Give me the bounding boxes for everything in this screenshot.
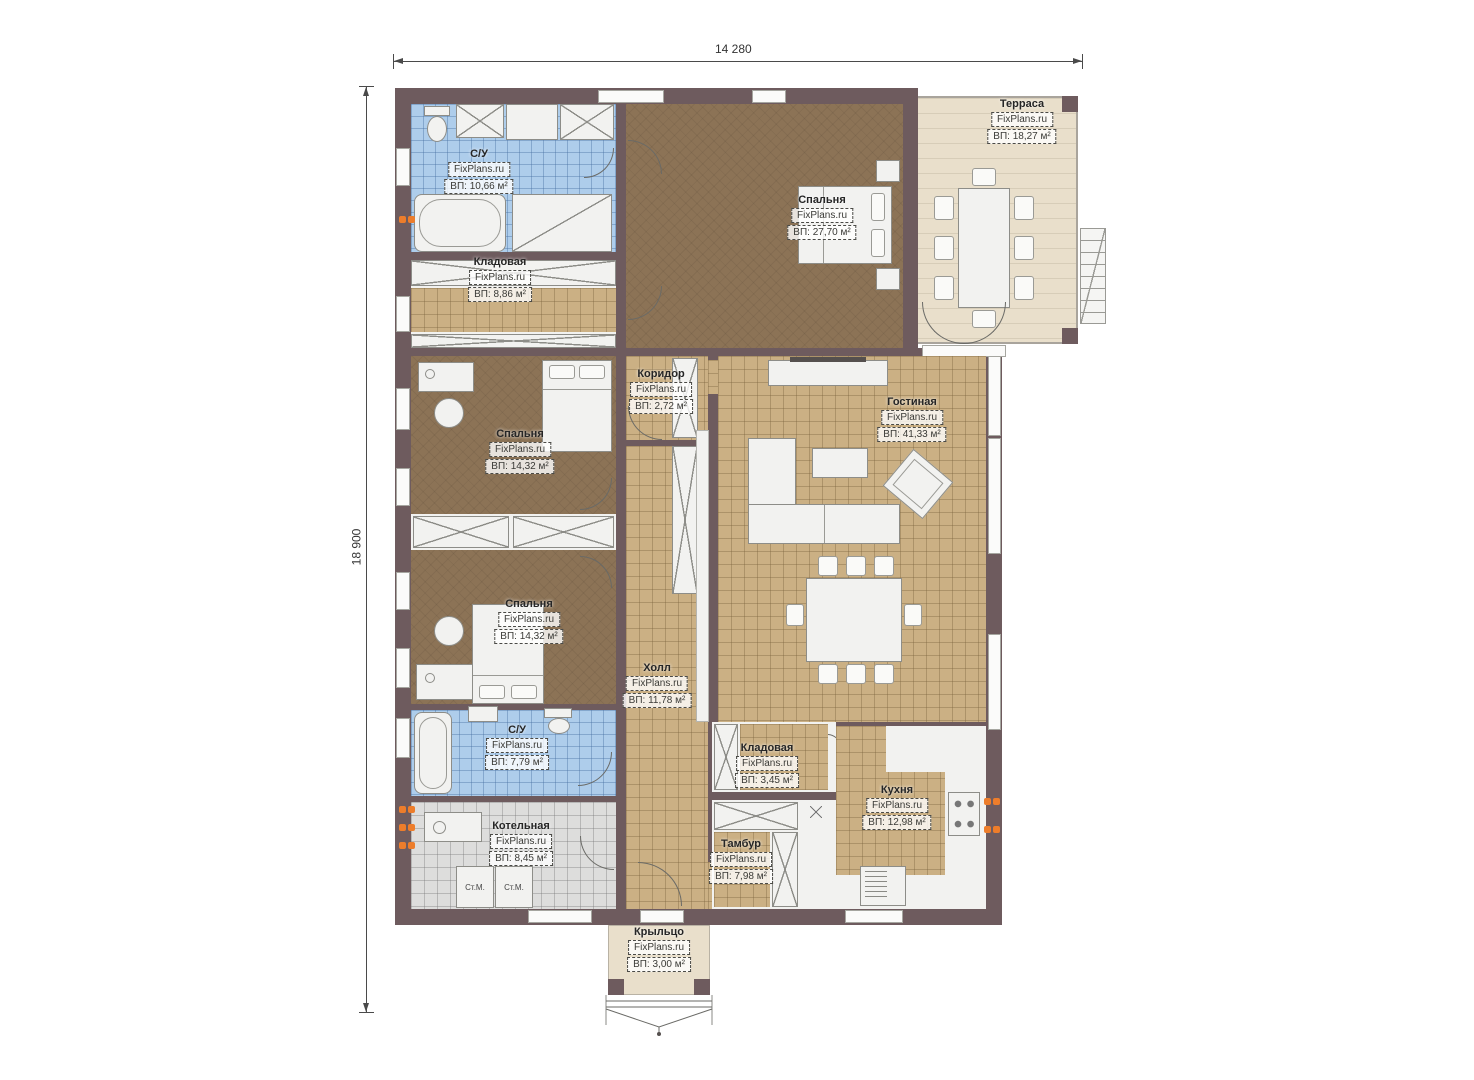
watermark: FixPlans.ru xyxy=(736,756,798,771)
watermark: FixPlans.ru xyxy=(991,112,1053,127)
chair-icon xyxy=(1014,276,1034,300)
room-label-bathroom-top: С/У FixPlans.ru ВП: 10,66 м² xyxy=(444,148,513,194)
wardrobe-icon xyxy=(411,334,616,348)
watermark: FixPlans.ru xyxy=(489,442,551,457)
chair-icon xyxy=(786,604,804,626)
wardrobe-icon xyxy=(672,446,698,594)
window xyxy=(396,296,410,332)
room-area: ВП: 14,32 м² xyxy=(494,629,563,644)
room-area: ВП: 18,27 м² xyxy=(987,129,1056,144)
chair-icon xyxy=(846,664,866,684)
tv-icon xyxy=(790,357,866,362)
dim-arrow-down xyxy=(363,1003,369,1012)
room-area: ВП: 14,32 м² xyxy=(485,459,554,474)
desk-lamp xyxy=(425,369,435,379)
utility-sink-icon xyxy=(424,812,482,842)
porch-post xyxy=(694,979,710,995)
watermark: FixPlans.ru xyxy=(469,270,531,285)
bathtub-icon xyxy=(414,712,452,794)
nightstand-icon xyxy=(876,160,900,182)
room-name: Спальня xyxy=(787,194,856,206)
porch-post xyxy=(608,979,624,995)
coffee-table-icon xyxy=(812,448,868,478)
window xyxy=(396,388,410,430)
window xyxy=(988,356,1001,436)
room-name: Кладовая xyxy=(468,256,532,268)
window xyxy=(752,90,786,103)
room-name: Кладовая xyxy=(735,742,799,754)
room-name: Котельная xyxy=(489,820,553,832)
floor-plan-canvas: 14 280 18 900 xyxy=(0,0,1474,1080)
room-area: ВП: 41,33 м² xyxy=(877,427,946,442)
watermark: FixPlans.ru xyxy=(710,852,772,867)
watermark: FixPlans.ru xyxy=(498,612,560,627)
watermark: FixPlans.ru xyxy=(881,410,943,425)
office-chair-icon xyxy=(434,616,464,646)
watermark: FixPlans.ru xyxy=(486,738,548,753)
bathtub-inner xyxy=(419,199,501,247)
room-name: Гостиная xyxy=(877,396,946,408)
dim-tick xyxy=(1082,54,1083,69)
chair-icon xyxy=(1014,236,1034,260)
dim-arrow-up xyxy=(363,87,369,96)
room-label-bedroom-low: Спальня FixPlans.ru ВП: 14,32 м² xyxy=(494,598,563,644)
desk-icon xyxy=(418,362,474,392)
office-chair-icon xyxy=(434,398,464,428)
radiator-icon xyxy=(399,216,406,223)
dimension-height-line xyxy=(366,86,367,1012)
room-area: ВП: 8,45 м² xyxy=(489,851,553,866)
room-area: ВП: 10,66 м² xyxy=(444,179,513,194)
chair-icon xyxy=(972,168,996,186)
wardrobe-icon xyxy=(714,802,798,830)
washing-machine-icon: Ст.М. xyxy=(495,866,533,908)
chair-icon xyxy=(874,556,894,576)
window xyxy=(988,438,1001,554)
porch-steps-icon xyxy=(602,995,716,1037)
radiator-icon xyxy=(984,798,991,805)
room-name: С/У xyxy=(444,148,513,160)
wardrobe-icon xyxy=(772,832,798,907)
watermark: FixPlans.ru xyxy=(628,940,690,955)
radiator-icon xyxy=(984,826,991,833)
chair-icon xyxy=(1014,196,1034,220)
room-name: Крыльцо xyxy=(627,926,691,938)
washer-label: Ст.М. xyxy=(457,867,493,907)
pillow xyxy=(549,365,575,379)
stairs-icon xyxy=(1080,228,1106,324)
room-name: Спальня xyxy=(494,598,563,610)
terrace-post xyxy=(902,96,918,112)
chair-icon xyxy=(818,556,838,576)
toilet-icon xyxy=(424,106,450,116)
toilet-icon xyxy=(427,116,447,142)
dining-table-icon xyxy=(806,578,902,662)
room-area: ВП: 8,86 м² xyxy=(468,287,532,302)
room-label-bedroom-top: Спальня FixPlans.ru ВП: 27,70 м² xyxy=(787,194,856,240)
tv-stand xyxy=(768,360,888,386)
chair-icon xyxy=(818,664,838,684)
sofa-icon xyxy=(748,504,900,544)
terrace-post xyxy=(1062,328,1078,344)
pillow xyxy=(479,685,505,699)
chair-icon xyxy=(934,196,954,220)
radiator-icon xyxy=(399,806,406,813)
washing-machine-icon: Ст.М. xyxy=(456,866,494,908)
window xyxy=(988,634,1001,730)
watermark: FixPlans.ru xyxy=(448,162,510,177)
dining-table-icon xyxy=(958,188,1010,308)
bathtub-inner xyxy=(419,717,447,789)
radiator-icon xyxy=(399,824,406,831)
dishwasher-stripes xyxy=(865,871,887,901)
window xyxy=(598,90,664,103)
room-label-kitchen: Кухня FixPlans.ru ВП: 12,98 м² xyxy=(862,784,931,830)
room-name: Кухня xyxy=(862,784,931,796)
blanket-line xyxy=(473,675,543,676)
sink-bowl xyxy=(433,821,446,834)
room-label-hall: Холл FixPlans.ru ВП: 11,78 м² xyxy=(623,662,692,708)
floor-drain-mark xyxy=(810,806,822,818)
chair-icon xyxy=(904,604,922,626)
window xyxy=(528,910,592,923)
room-name: С/У xyxy=(485,724,549,736)
sofa-seam xyxy=(824,505,825,543)
pillow xyxy=(871,193,885,221)
pillow xyxy=(579,365,605,379)
terrace-post xyxy=(902,328,918,344)
wardrobe-icon xyxy=(560,104,614,140)
pillow xyxy=(511,685,537,699)
dimension-height-label: 18 900 xyxy=(349,529,363,566)
room-label-tambur: Тамбур FixPlans.ru ВП: 7,98 м² xyxy=(709,838,773,884)
room-name: Холл xyxy=(623,662,692,674)
dim-arrow-right xyxy=(1073,58,1082,64)
room-area: ВП: 2,72 м² xyxy=(629,399,693,414)
dimension-width-label: 14 280 xyxy=(715,42,752,56)
washer-label: Ст.М. xyxy=(496,867,532,907)
bathtub-icon xyxy=(414,194,506,252)
wardrobe-icon xyxy=(513,516,614,548)
terrace-post xyxy=(1062,96,1078,112)
room-label-terrace: Терраса FixPlans.ru ВП: 18,27 м² xyxy=(987,98,1056,144)
room-label-storage-small: Кладовая FixPlans.ru ВП: 3,45 м² xyxy=(735,742,799,788)
room-area: ВП: 7,79 м² xyxy=(485,755,549,770)
dim-arrow-left xyxy=(394,58,403,64)
chair-icon xyxy=(934,236,954,260)
room-area: ВП: 11,78 м² xyxy=(623,693,692,708)
watermark: FixPlans.ru xyxy=(626,676,688,691)
window xyxy=(396,718,410,758)
watermark: FixPlans.ru xyxy=(630,382,692,397)
room-area: ВП: 27,70 м² xyxy=(787,225,856,240)
blanket-line xyxy=(543,389,611,390)
room-name: Спальня xyxy=(485,428,554,440)
dimension-width-line xyxy=(393,61,1083,62)
pillow xyxy=(871,229,885,257)
room-label-storage-top: Кладовая FixPlans.ru ВП: 8,86 м² xyxy=(468,256,532,302)
opening-corridor-living xyxy=(708,360,718,394)
desk-lamp xyxy=(425,673,435,683)
desk-icon xyxy=(416,664,474,700)
wardrobe-icon xyxy=(456,104,504,138)
toilet-icon xyxy=(544,708,572,718)
stove-icon xyxy=(948,792,980,836)
window xyxy=(396,148,410,186)
dim-tick xyxy=(359,1012,374,1013)
window xyxy=(396,648,410,688)
room-label-porch: Крыльцо FixPlans.ru ВП: 3,00 м² xyxy=(627,926,691,972)
nightstand-icon xyxy=(876,268,900,290)
window xyxy=(845,910,903,923)
shower-icon xyxy=(512,194,612,252)
room-label-living: Гостиная FixPlans.ru ВП: 41,33 м² xyxy=(877,396,946,442)
kitchen-sink-icon xyxy=(860,866,906,906)
watermark: FixPlans.ru xyxy=(866,798,928,813)
radiator-icon xyxy=(399,842,406,849)
kitchen-counter-top xyxy=(886,726,986,772)
toilet-icon xyxy=(548,718,570,734)
window xyxy=(396,572,410,610)
washbasin-icon xyxy=(468,706,498,722)
partition-shelf xyxy=(696,430,709,722)
room-label-corridor: Коридор FixPlans.ru ВП: 2,72 м² xyxy=(629,368,693,414)
window xyxy=(396,468,410,506)
room-label-bedroom-mid: Спальня FixPlans.ru ВП: 14,32 м² xyxy=(485,428,554,474)
wardrobe-icon xyxy=(413,516,509,548)
entrance-door-gap xyxy=(640,910,684,923)
room-area: ВП: 3,00 м² xyxy=(627,957,691,972)
watermark: FixPlans.ru xyxy=(791,208,853,223)
room-area: ВП: 12,98 м² xyxy=(862,815,931,830)
closet-icon xyxy=(506,104,558,140)
chair-icon xyxy=(846,556,866,576)
room-name: Коридор xyxy=(629,368,693,380)
room-name: Терраса xyxy=(987,98,1056,110)
room-label-boiler: Котельная FixPlans.ru ВП: 8,45 м² xyxy=(489,820,553,866)
room-area: ВП: 3,45 м² xyxy=(735,773,799,788)
room-label-bathroom-bottom: С/У FixPlans.ru ВП: 7,79 м² xyxy=(485,724,549,770)
room-area: ВП: 7,98 м² xyxy=(709,869,773,884)
chair-icon xyxy=(874,664,894,684)
watermark: FixPlans.ru xyxy=(490,834,552,849)
room-name: Тамбур xyxy=(709,838,773,850)
chair-icon xyxy=(934,276,954,300)
